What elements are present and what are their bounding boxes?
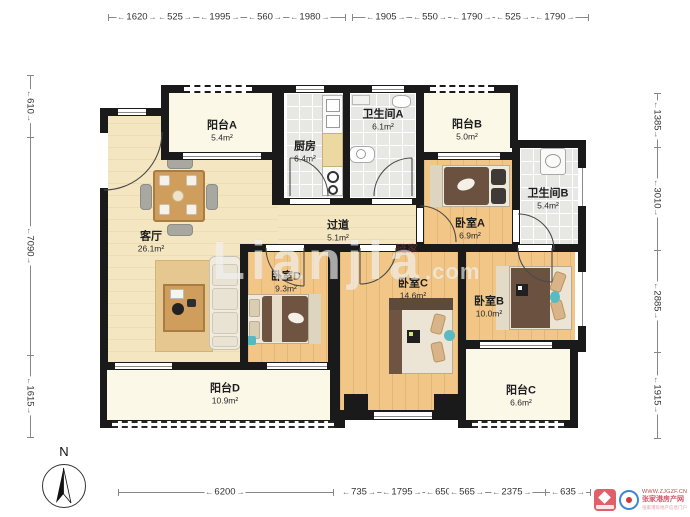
room-name: 卫生间A: [363, 109, 404, 122]
dining-chair: [167, 224, 193, 236]
dim-label: 1980: [289, 12, 330, 23]
dim-label: 2885: [652, 281, 663, 320]
balcony-railing: [472, 421, 564, 428]
wardrobe: [430, 165, 443, 207]
dim-label: 1995: [199, 12, 240, 23]
sink-basin: [545, 154, 561, 168]
window: [372, 86, 404, 92]
floor-plan: 客厅 26.1m² 阳台A 5.4m² 厨房 6.4m² 卫生间A 6.1m² …: [0, 0, 690, 517]
stove-burner: [328, 185, 338, 195]
compass-north-label: N: [38, 444, 90, 459]
wall-segment: [458, 244, 466, 349]
door-opening: [360, 245, 396, 251]
pillar: [434, 394, 458, 412]
dim-label: 1905: [365, 12, 406, 23]
kitchen-sink: [326, 99, 340, 112]
room-area: 5.0m²: [452, 131, 482, 141]
room-name: 过道: [327, 220, 349, 233]
kitchen-cabinet: [322, 133, 343, 167]
window: [118, 109, 146, 115]
dim-label: 1615: [25, 376, 36, 415]
dining-chair: [140, 184, 152, 210]
room-name: 阳台A: [207, 120, 237, 133]
room-label-kitchen: 厨房 6.4m²: [294, 141, 316, 164]
door-opening: [266, 245, 304, 251]
pillar: [344, 394, 368, 412]
room-name: 卧室C: [398, 278, 428, 291]
dim-label: 550: [412, 12, 448, 23]
room-area: 26.1m²: [138, 243, 164, 253]
sliding-door: [438, 153, 500, 159]
room-label-balcony-a: 阳台A 5.4m²: [207, 120, 237, 143]
room-label-balcony-b: 阳台B 5.0m²: [452, 119, 482, 142]
pillow: [491, 188, 506, 204]
dim-label: 1790: [534, 12, 575, 23]
bath-shelf: [352, 95, 370, 105]
dim-label: 1790: [451, 12, 492, 23]
wardrobe: [308, 294, 321, 344]
room-area: 14.6m²: [398, 290, 428, 300]
room-area: 10.9m²: [210, 395, 240, 405]
room-label-bedroom-c: 卧室C 14.6m²: [398, 278, 428, 301]
room-area: 5.1m²: [327, 232, 349, 242]
room-area: 10.0m²: [474, 308, 504, 318]
window: [578, 272, 586, 326]
dim-label: 1385: [652, 100, 663, 139]
room-name: 卧室A: [455, 218, 485, 231]
room-label-bath-a: 卫生间A 6.1m²: [363, 109, 404, 132]
wall-segment: [328, 244, 340, 370]
dim-label: 6200: [204, 487, 245, 498]
room-name: 卫生间B: [528, 188, 569, 201]
room-label-bedroom-a: 卧室A 6.9m²: [455, 218, 485, 241]
room-label-living: 客厅 26.1m²: [138, 231, 164, 254]
compass-needle-icon: [43, 465, 84, 506]
pillow: [491, 169, 506, 185]
wall-segment: [458, 345, 466, 428]
wall-segment: [272, 85, 284, 205]
door-opening: [518, 245, 552, 251]
plate: [186, 175, 197, 186]
sofa-cushion: [212, 312, 238, 334]
room-area: 6.4m²: [294, 153, 316, 163]
sliding-door: [183, 153, 261, 159]
door-opening: [417, 208, 423, 242]
site-badge: WWW.ZJGZF.CN 张家港房产网 张家港房地产信息门户: [594, 486, 690, 514]
dim-label: 565: [449, 487, 485, 498]
notepad: [170, 289, 184, 299]
room-name: 卧室D: [271, 271, 301, 284]
room-area: 9.3m²: [271, 283, 301, 293]
room-area: 6.1m²: [363, 121, 404, 131]
wall-segment: [343, 93, 350, 205]
wall-segment: [100, 362, 107, 428]
accent-item: [550, 291, 560, 303]
room-label-bedroom-b: 卧室B 10.0m²: [474, 296, 504, 319]
dim-label: 1620: [116, 12, 157, 23]
window: [296, 86, 324, 92]
plate: [159, 175, 170, 186]
sliding-door: [480, 342, 552, 348]
room-area: 6.6m²: [506, 397, 536, 407]
room-name: 阳台D: [210, 383, 240, 396]
accent-item: [247, 336, 256, 345]
accent-item: [444, 330, 455, 341]
room-area: 5.4m²: [528, 200, 569, 210]
balcony-railing: [112, 421, 334, 428]
room-label-hallway: 过道 5.1m²: [327, 220, 349, 243]
site-name: 张家港房产网: [642, 496, 687, 505]
balcony-window: [430, 85, 494, 93]
room-name: 卧室B: [474, 296, 504, 309]
kettle: [172, 303, 184, 315]
dim-label: 525: [157, 12, 193, 23]
room-name: 厨房: [294, 141, 316, 154]
dim-label: 610: [25, 89, 36, 123]
plate: [159, 204, 170, 215]
room-area: 5.4m²: [207, 132, 237, 142]
room-label-balcony-d: 阳台D 10.9m²: [210, 383, 240, 406]
plate: [186, 204, 197, 215]
bed-box-dot: [409, 332, 413, 336]
bowl: [172, 190, 184, 202]
window: [374, 412, 432, 419]
door-opening: [290, 199, 330, 204]
sink: [392, 95, 411, 108]
wall-segment: [510, 85, 518, 148]
room-label-bedroom-d: 卧室D 9.3m²: [271, 271, 301, 294]
dim-label: 7090: [25, 226, 36, 265]
room-name: 客厅: [138, 231, 164, 244]
entry-door-opening: [100, 133, 108, 188]
room-name: 阳台C: [506, 385, 536, 398]
sofa-ottoman: [212, 336, 238, 347]
dim-label: 2375: [491, 487, 532, 498]
site-seal-icon: [619, 490, 639, 510]
room-area: 6.9m²: [455, 230, 485, 240]
dim-label: 1795: [381, 487, 422, 498]
dim-label: 560: [247, 12, 283, 23]
dim-label: 525: [495, 12, 531, 23]
duvet: [511, 268, 550, 328]
door-opening: [372, 199, 412, 204]
wall-segment: [161, 85, 169, 160]
pillow: [249, 299, 260, 317]
dim-label: 735: [341, 487, 377, 498]
door-opening: [513, 210, 519, 242]
duvet-stripe: [272, 296, 282, 342]
site-tagline: 张家港房地产信息门户: [642, 505, 687, 511]
dim-label: 1915: [652, 375, 663, 414]
room-name: 阳台B: [452, 119, 482, 132]
stove-burner: [327, 171, 339, 183]
site-logo-icon: [594, 489, 616, 511]
bed-box-dot: [518, 286, 522, 290]
kitchen-sink: [326, 115, 340, 128]
teapot: [187, 299, 196, 307]
wall-segment: [570, 345, 578, 428]
window: [578, 168, 586, 206]
dim-label: 635: [550, 487, 586, 498]
compass-circle: [42, 464, 86, 508]
site-badge-text: WWW.ZJGZF.CN 张家港房产网 张家港房地产信息门户: [642, 489, 687, 510]
duvet: [389, 310, 402, 374]
balcony-window: [184, 85, 252, 93]
dim-label: 3010: [652, 178, 663, 217]
room-label-bath-b: 卫生间B 5.4m²: [528, 188, 569, 211]
dining-chair: [206, 184, 218, 210]
sofa-cushion: [212, 288, 238, 310]
washer-door: [356, 149, 366, 159]
wall-segment: [510, 140, 586, 148]
sofa-cushion: [212, 264, 238, 286]
sliding-door: [267, 363, 327, 369]
wall-segment: [240, 244, 248, 370]
sliding-door: [115, 363, 172, 369]
room-label-balcony-c: 阳台C 6.6m²: [506, 385, 536, 408]
compass: N: [38, 444, 90, 516]
